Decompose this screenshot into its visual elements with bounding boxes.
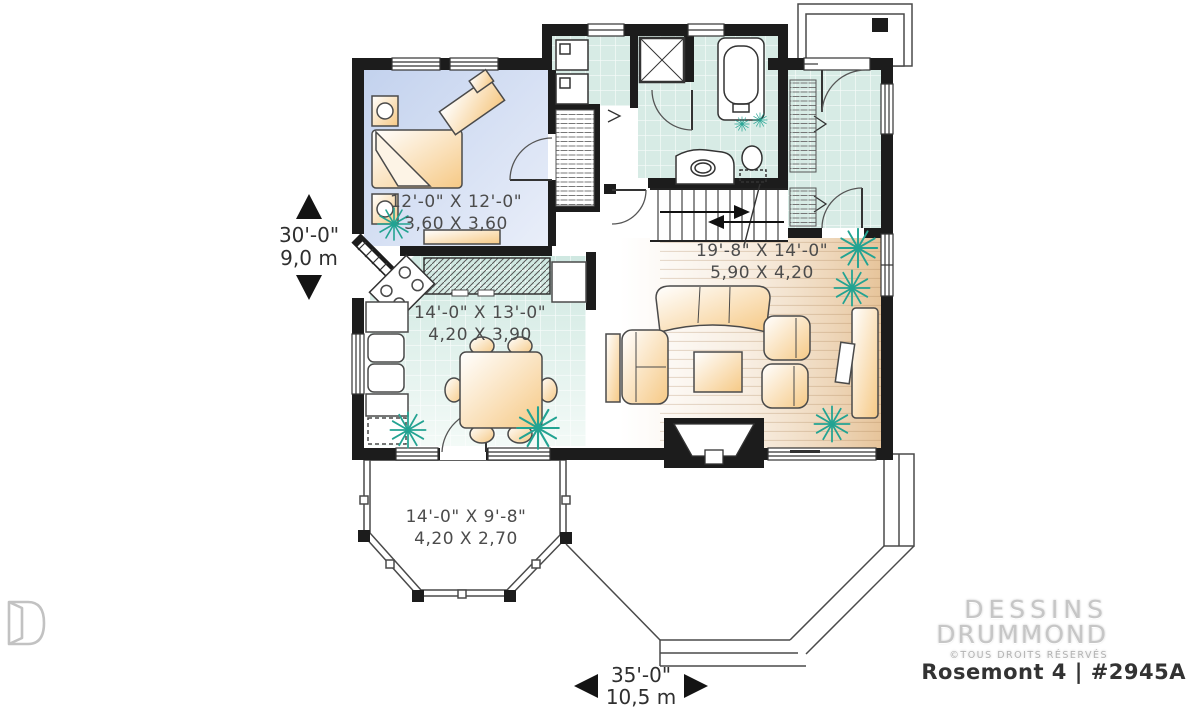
- living-dim-imperial: 19'-8" X 14'-0": [667, 240, 857, 262]
- patio-door: [768, 448, 876, 460]
- plan-name: Rosemont 4 | #2945A: [921, 660, 1186, 684]
- dining-dim-metric: 4,20 X 3,90: [385, 324, 575, 346]
- entry-closet-hatch-1: [790, 80, 816, 172]
- entry-closet-hatch-2: [790, 188, 816, 226]
- entry-window: [881, 84, 893, 134]
- overall-width-dimension: 35'-0" 10,5 m: [566, 664, 716, 708]
- overall-depth-dimension: 30'-0" 9,0 m: [266, 194, 352, 300]
- refrigerator: [552, 262, 586, 302]
- living-window: [881, 234, 893, 296]
- bedroom-dim-imperial: 12'-0" X 12'-0": [361, 191, 551, 213]
- deck-outline: [566, 454, 914, 666]
- front-door-gap: [804, 58, 870, 70]
- depth-imperial: 30'-0": [279, 224, 339, 247]
- counter: [366, 394, 408, 416]
- living-dim-metric: 5,90 X 4,20: [667, 262, 857, 284]
- arrow-left-icon: [574, 674, 598, 698]
- media-unit: [852, 308, 878, 418]
- logo-line1: DESSINS: [936, 597, 1108, 622]
- bar-counter: [424, 258, 550, 294]
- depth-metric: 9,0 m: [279, 247, 339, 270]
- arrow-right-icon: [684, 674, 708, 698]
- coffee-table: [694, 352, 742, 392]
- dining-dim-imperial: 14'-0" X 13'-0": [385, 302, 575, 324]
- porch-dim-metric: 4,20 X 2,70: [371, 528, 561, 550]
- side-table: [606, 334, 620, 402]
- logo: DESSINS DRUMMOND ©TOUS DROITS RÉSERVÉS: [936, 597, 1108, 661]
- logo-line2: DRUMMOND: [936, 622, 1108, 648]
- closet-chevron: [608, 110, 620, 122]
- walkin-closet-hatch: [556, 110, 594, 206]
- bedroom-door-gap: [548, 134, 556, 180]
- porch-dim-imperial: 14'-0" X 9'-8": [371, 506, 561, 528]
- dishwasher: [368, 418, 406, 444]
- bathtub: [718, 38, 764, 120]
- curved-sofa: [656, 286, 770, 332]
- drummond-door-icon: [0, 596, 48, 650]
- bedroom-dim-metric: 3,60 X 3,60: [361, 213, 551, 235]
- width-imperial: 35'-0": [606, 664, 676, 686]
- porch-label: 14'-0" X 9'-8" 4,20 X 2,70: [371, 506, 561, 550]
- arrow-down-icon: [296, 275, 322, 300]
- bedroom-label: 12'-0" X 12'-0" 3,60 X 3,60: [361, 191, 551, 235]
- fireplace: [664, 418, 764, 468]
- floor-plan-sheet: 12'-0" X 12'-0" 3,60 X 3,60 14'-0" X 13'…: [0, 0, 1200, 711]
- kitchen-window-left: [352, 334, 364, 394]
- dining-label: 14'-0" X 13'-0" 4,20 X 3,90: [385, 302, 575, 346]
- vanity-sink: [676, 150, 734, 184]
- arrow-up-icon: [296, 194, 322, 219]
- shower: [640, 38, 684, 82]
- armchair: [764, 316, 810, 360]
- stair-hall-door: [612, 190, 646, 224]
- living-label: 19'-8" X 14'-0" 5,90 X 4,20: [667, 240, 857, 284]
- porch-door-gap: [440, 448, 486, 460]
- width-metric: 10,5 m: [606, 686, 676, 708]
- loveseat: [622, 330, 668, 404]
- staircase: [650, 184, 788, 246]
- armchair: [762, 364, 808, 408]
